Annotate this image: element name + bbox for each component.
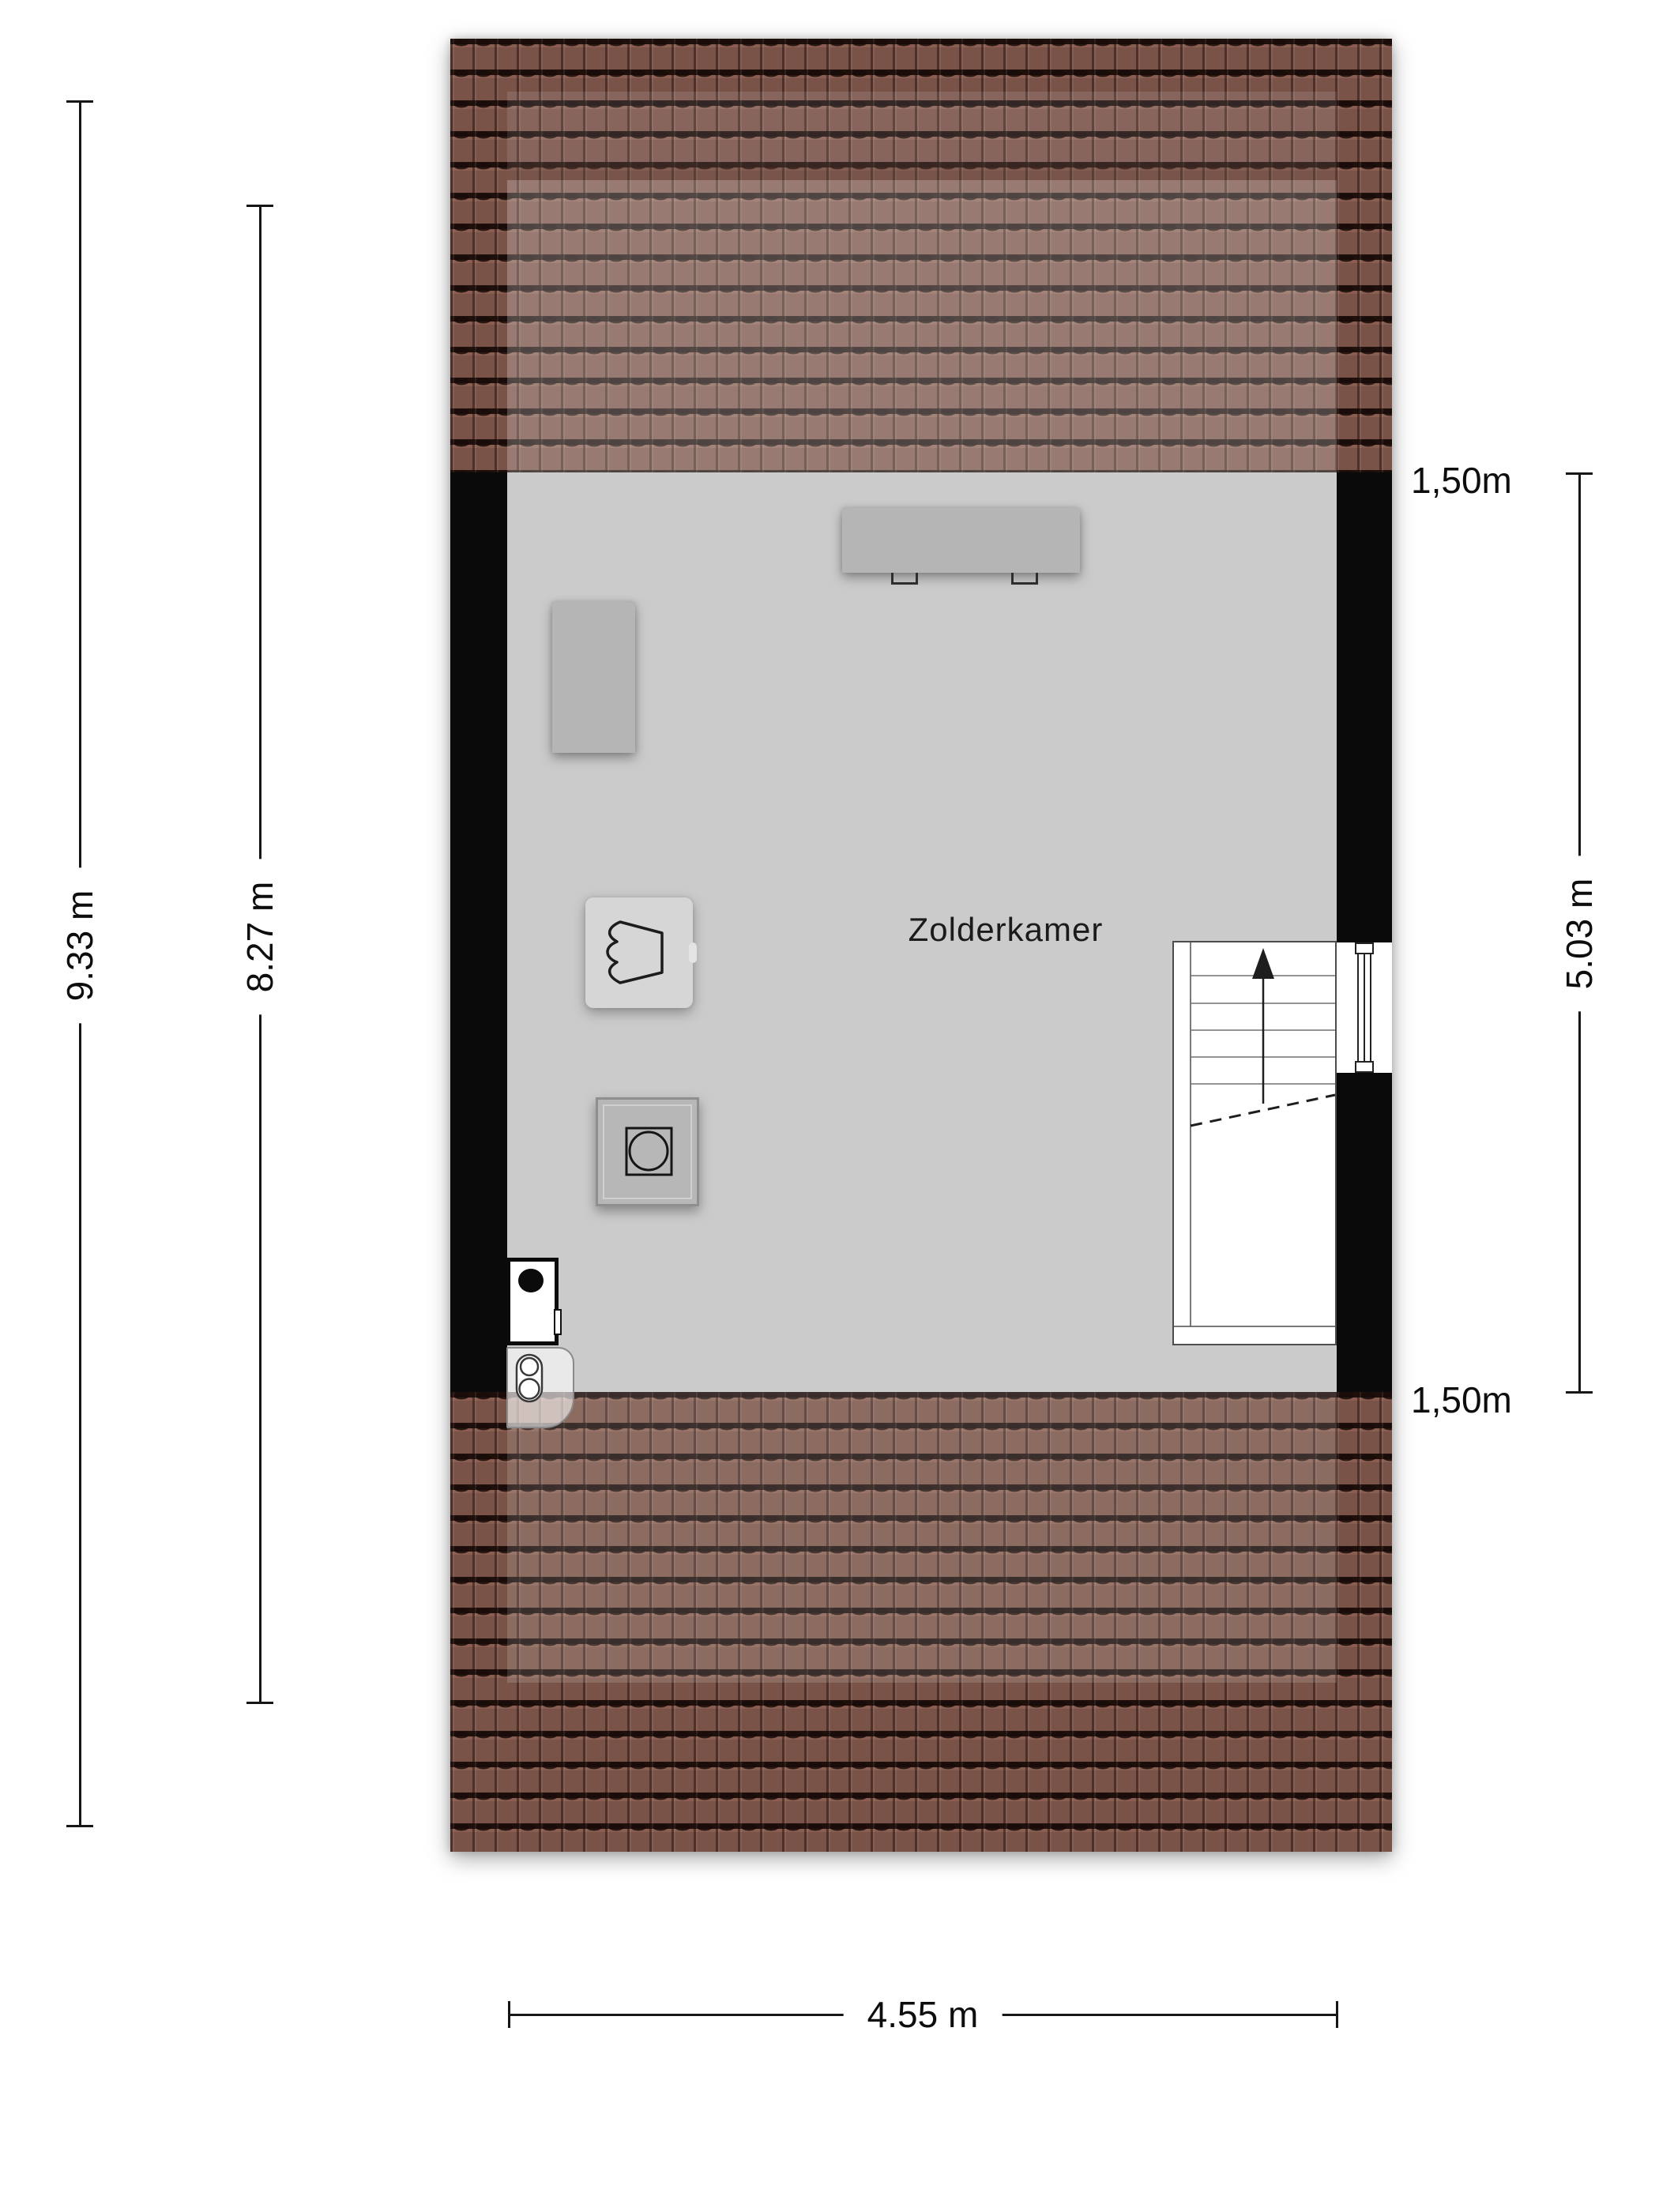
roof-bottom-light-area	[507, 1392, 1337, 1683]
dim-tick	[246, 1702, 273, 1704]
dim-tick	[1566, 472, 1593, 475]
roof-bottom	[450, 1392, 1392, 1852]
knee-wall-label-top: 1,50m	[1411, 459, 1512, 502]
dim-tick	[1336, 2001, 1338, 2028]
armchair-cushion	[689, 942, 697, 963]
stairs-icon	[1172, 941, 1337, 1345]
window-frame-icon	[1337, 942, 1392, 1073]
wardrobe	[552, 602, 635, 753]
room-name-label: Zolderkamer	[908, 911, 1104, 949]
floorplan: Zolderkamer	[450, 39, 1392, 1852]
dim-label-right: 5.03 m	[1553, 856, 1605, 1012]
boiler-burner-icon	[518, 1269, 544, 1292]
dim-tick	[1566, 1391, 1593, 1394]
table	[842, 508, 1080, 573]
dim-tick	[246, 205, 273, 207]
window	[1337, 942, 1392, 1073]
floorplan-page: Zolderkamer	[0, 0, 1659, 2212]
wall-left	[450, 472, 507, 1392]
knee-wall-label-bottom: 1,50m	[1411, 1379, 1512, 1421]
boiler-connection	[554, 1309, 562, 1335]
roof-top	[450, 39, 1392, 472]
roof-top-lighter-area	[507, 180, 1337, 472]
ventilation-unit	[506, 1347, 574, 1428]
table-leg-bracket	[1011, 573, 1038, 585]
wall-right	[1337, 472, 1392, 1392]
dim-label-bottom: 4.55 m	[844, 1993, 1003, 2036]
washing-machine-drum-icon	[598, 1100, 697, 1204]
stairs	[1172, 941, 1337, 1345]
ventilation-unit-icon	[508, 1349, 573, 1427]
armchair-icon	[585, 897, 693, 1008]
armchair	[585, 897, 693, 1008]
dim-tick	[66, 1825, 93, 1827]
dim-tick	[66, 100, 93, 103]
roof-top-seam	[507, 163, 1337, 180]
table-leg-bracket	[891, 573, 918, 585]
dim-label-left-outer: 9.33 m	[54, 868, 106, 1024]
dim-tick	[508, 2001, 510, 2028]
boiler	[506, 1258, 559, 1345]
dim-label-left-inner: 8.27 m	[234, 860, 286, 1015]
washing-machine	[596, 1097, 699, 1206]
